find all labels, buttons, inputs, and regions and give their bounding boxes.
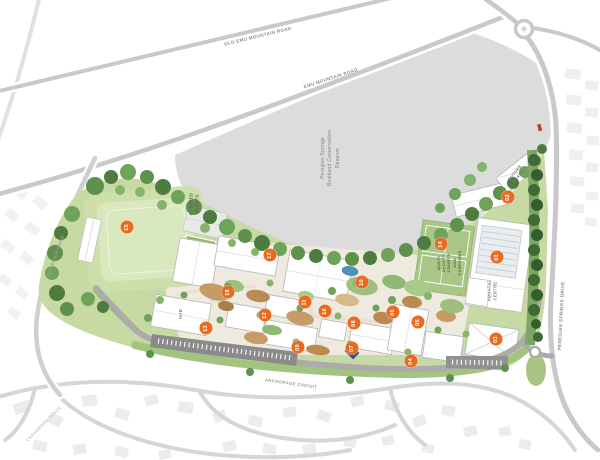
building-marker[interactable]: 14	[435, 238, 448, 251]
building-near-courts	[465, 278, 490, 307]
building-marker-number: 15	[124, 224, 130, 231]
building-marker-number: 08	[351, 320, 357, 327]
building-marker[interactable]: 15	[121, 221, 134, 234]
building-marker[interactable]: 02	[502, 191, 515, 204]
building-marker[interactable]: 10	[356, 276, 369, 289]
building-marker[interactable]: 11	[299, 296, 312, 309]
building-marker[interactable]: 01	[491, 251, 504, 264]
roundabout	[516, 21, 533, 38]
building-marker[interactable]: 04	[405, 355, 418, 368]
building-marker-number: 16	[322, 308, 328, 315]
building-marker[interactable]: 09	[292, 341, 305, 354]
building-marker-number: 09	[295, 344, 301, 351]
building-marker-number: 07	[349, 345, 355, 352]
building-marker-number: 18	[225, 289, 231, 296]
building-marker-number: 06	[390, 309, 396, 316]
building-marker-number: 04	[408, 358, 414, 365]
building-marker-number: 01	[494, 254, 500, 261]
building-marker[interactable]: 18	[222, 286, 235, 299]
building-marker-number: 10	[359, 279, 365, 286]
building-marker-number: 14	[438, 241, 444, 248]
campus-site-map: OLD EMU MOUNTAIN ROAD EMU MOUNTAIN ROAD …	[0, 0, 600, 460]
building-marker-number: 13	[203, 325, 209, 332]
building-marker[interactable]: 05	[412, 316, 425, 329]
building-marker-number: 17	[267, 252, 273, 259]
building-marker[interactable]: 12	[259, 309, 272, 322]
building-marker-number: 12	[262, 312, 268, 319]
estate-houses-east	[565, 68, 600, 226]
building-marker-number: 05	[415, 319, 421, 326]
map-artwork	[0, 0, 600, 460]
building-marker-number: 11	[302, 299, 308, 305]
building-marker[interactable]: 07	[346, 342, 359, 355]
building-marker[interactable]: 17	[264, 249, 277, 262]
building-marker[interactable]: 03	[490, 333, 503, 346]
campus-roundabout	[530, 347, 540, 357]
building-marker[interactable]: 13	[200, 322, 213, 335]
building-marker[interactable]: 08	[348, 317, 361, 330]
building-marker[interactable]: 06	[387, 306, 400, 319]
building-marker-number: 02	[505, 194, 511, 201]
estate-houses	[13, 394, 532, 460]
building-marker[interactable]: 16	[319, 305, 332, 318]
building-marker-number: 03	[493, 336, 499, 343]
